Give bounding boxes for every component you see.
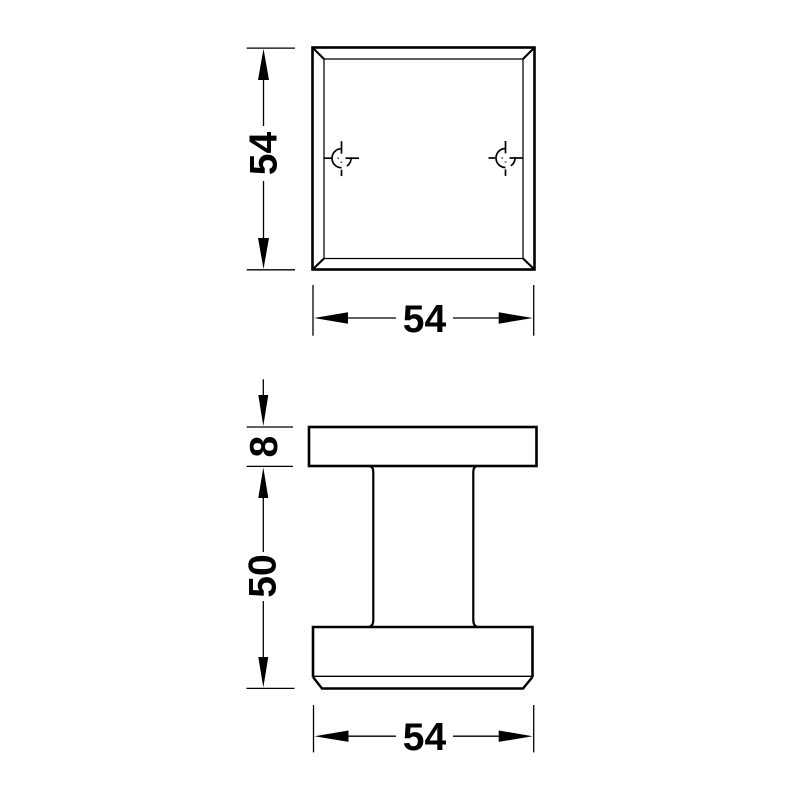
svg-text:8: 8 <box>243 436 286 458</box>
svg-text:54: 54 <box>403 716 447 759</box>
svg-text:54: 54 <box>243 132 286 176</box>
svg-text:50: 50 <box>242 554 285 597</box>
svg-text:54: 54 <box>403 298 447 341</box>
